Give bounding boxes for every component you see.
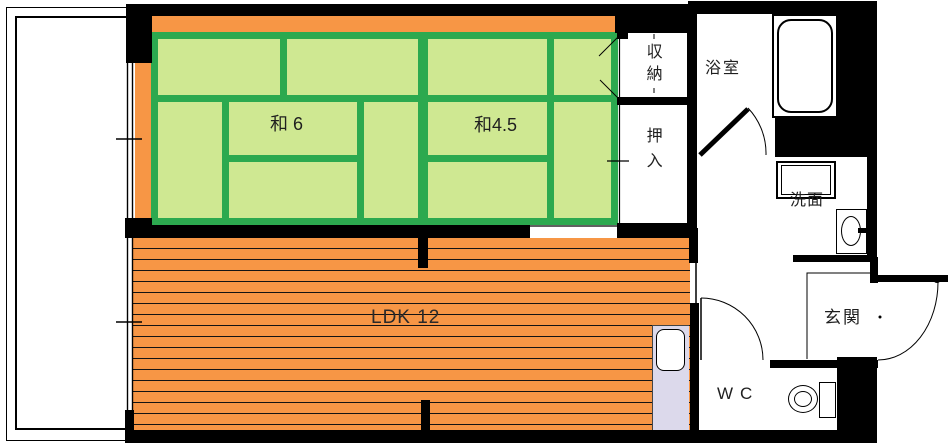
- entrance-door-arc: [878, 282, 938, 360]
- washer-faucet-tick: [858, 228, 874, 233]
- room-label-japanese-6: 和6: [270, 115, 308, 135]
- room-label-washroom: 洗面: [790, 192, 824, 210]
- room-label-wc: WC: [717, 385, 759, 404]
- wc-door-arc: [701, 298, 763, 360]
- line-art-layer: [0, 0, 950, 443]
- room-label-ldk: LDK 12: [371, 308, 440, 329]
- room-label-japanese-4-5: 和4.5: [474, 116, 517, 136]
- entrance-door-knob-dot: [879, 316, 882, 319]
- room-label-bathroom: 浴室: [705, 60, 741, 78]
- room-label-closet: 押入: [643, 126, 661, 178]
- bathroom-door-leaf: [700, 109, 748, 155]
- entrance-door-hinge-dot: [933, 275, 941, 283]
- storage-door-swing-line: [599, 37, 618, 56]
- bathroom-door-arc: [748, 108, 766, 155]
- floor-plan: 和6 和4.5 LDK 12 収納 押入 浴室 洗面 玄関 WC: [0, 0, 950, 443]
- storage-door-swing-line: [600, 80, 621, 101]
- room-label-entrance: 玄関: [824, 309, 862, 328]
- room-label-storage: 収納: [643, 42, 661, 88]
